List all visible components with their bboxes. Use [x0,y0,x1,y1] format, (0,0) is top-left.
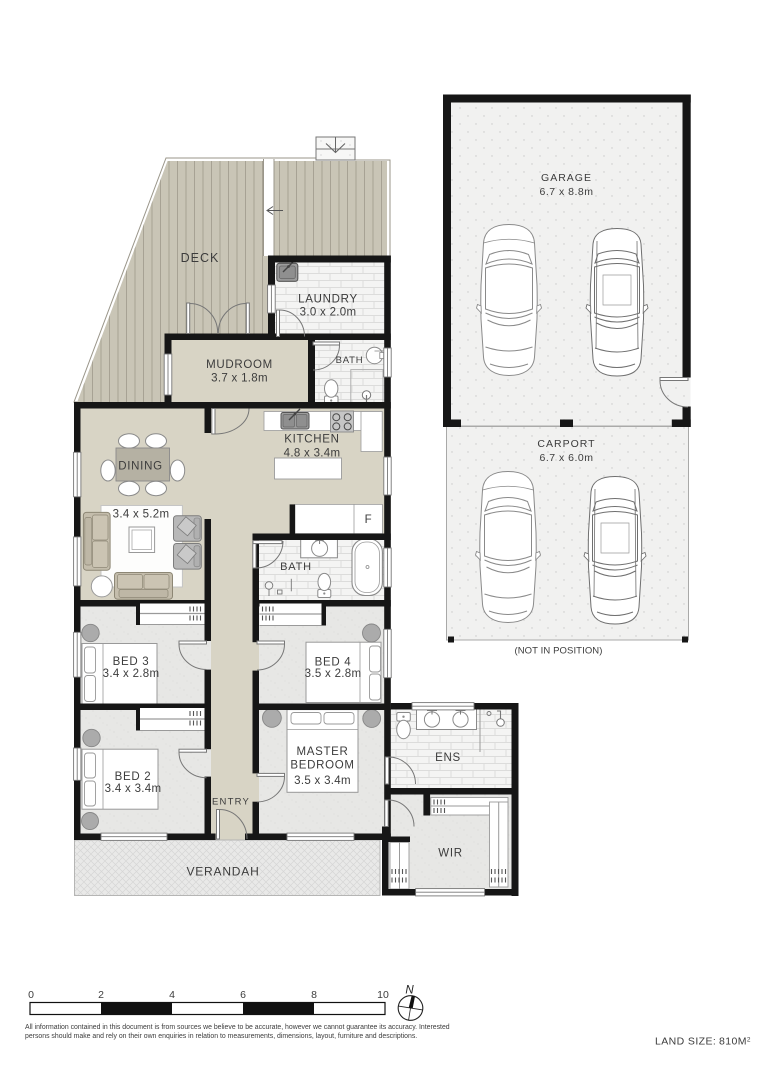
svg-text:6.7 x 8.8m: 6.7 x 8.8m [539,186,593,198]
svg-text:All information contained in t: All information contained in this docume… [25,1024,450,1031]
svg-text:BED 4: BED 4 [315,656,352,668]
svg-text:3.7 x 1.8m: 3.7 x 1.8m [211,372,268,384]
svg-text:VERANDAH: VERANDAH [186,864,259,878]
svg-text:810M2: 810M2 [719,1036,751,1048]
svg-text:4: 4 [169,989,175,1001]
svg-text:0: 0 [28,989,34,1001]
svg-text:LAUNDRY: LAUNDRY [298,294,358,306]
svg-text:3.4 x 2.8m: 3.4 x 2.8m [103,668,160,680]
svg-text:4.8 x 3.4m: 4.8 x 3.4m [284,448,341,460]
svg-text:8: 8 [311,989,317,1001]
svg-text:ENS: ENS [435,752,461,764]
svg-text:3.4 x 3.4m: 3.4 x 3.4m [105,783,162,795]
svg-text:KITCHEN: KITCHEN [284,434,339,446]
svg-text:BATH: BATH [280,561,312,573]
svg-text:3.4 x 5.2m: 3.4 x 5.2m [113,509,170,521]
svg-text:F: F [365,514,373,526]
svg-text:MUDROOM: MUDROOM [206,359,273,371]
svg-text:N: N [405,985,414,997]
svg-text:DINING: DINING [118,461,162,473]
svg-text:CARPORT: CARPORT [537,438,595,450]
svg-text:MASTER: MASTER [296,746,348,758]
svg-text:persons should make and rely o: persons should make and rely on their ow… [25,1033,417,1040]
svg-text:BED 3: BED 3 [113,656,150,668]
svg-text:ENTRY: ENTRY [212,797,250,808]
svg-text:3.5 x 2.8m: 3.5 x 2.8m [305,668,362,680]
svg-text:WIR: WIR [438,847,462,859]
svg-text:BEDROOM: BEDROOM [290,760,354,772]
svg-text:(NOT IN POSITION): (NOT IN POSITION) [514,646,602,657]
svg-text:2: 2 [98,989,104,1001]
svg-text:10: 10 [377,989,389,1001]
svg-text:3.0 x 2.0m: 3.0 x 2.0m [300,307,357,319]
svg-text:3.5 x 3.4m: 3.5 x 3.4m [294,775,351,787]
svg-text:6.7 x 6.0m: 6.7 x 6.0m [539,452,593,464]
svg-text:6: 6 [240,989,246,1001]
svg-text:BATH: BATH [336,355,364,366]
svg-text:GARAGE: GARAGE [541,172,592,184]
svg-text:BED 2: BED 2 [115,771,152,783]
svg-text:DECK: DECK [181,251,220,265]
svg-text:LAND SIZE:: LAND SIZE: [655,1036,716,1048]
